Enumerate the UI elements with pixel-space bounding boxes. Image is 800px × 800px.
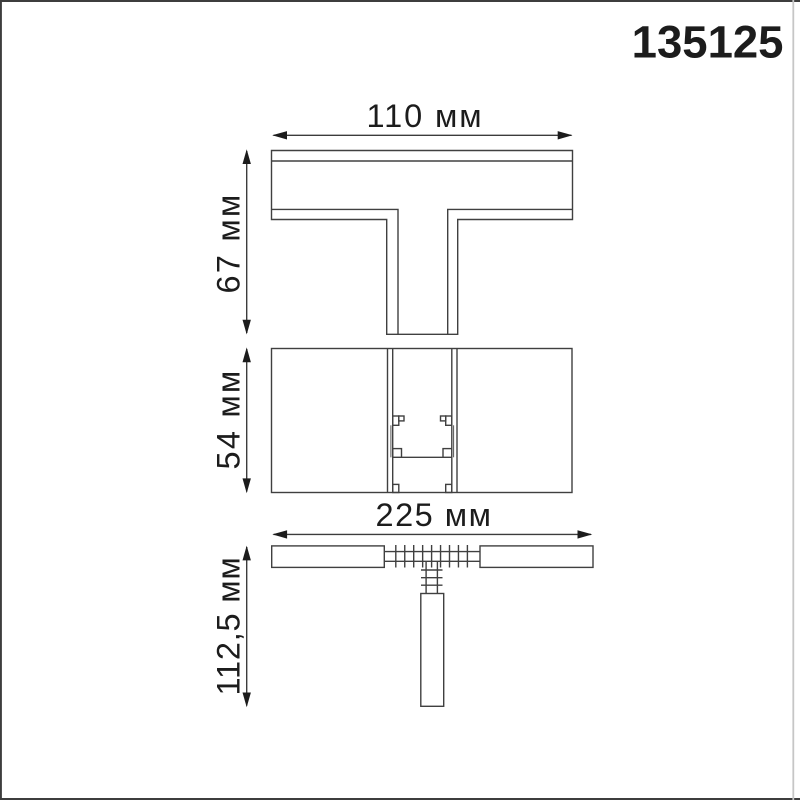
svg-text:135125: 135125 [632,16,784,67]
svg-text:54 мм: 54 мм [210,369,246,470]
svg-text:110 мм: 110 мм [367,98,484,134]
svg-text:67 мм: 67 мм [210,193,246,294]
svg-text:112,5 мм: 112,5 мм [210,556,246,695]
svg-text:225 мм: 225 мм [376,497,493,533]
